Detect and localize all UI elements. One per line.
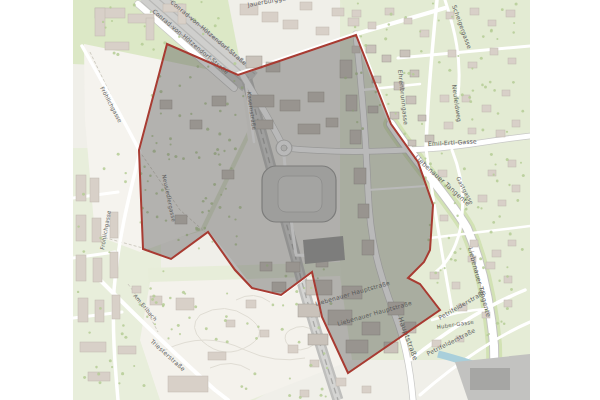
tree-dot [461, 93, 464, 96]
tree-dot [111, 20, 113, 22]
building [492, 250, 501, 257]
tree-dot [289, 377, 291, 379]
tree-dot [521, 248, 524, 251]
tree-dot [162, 270, 164, 272]
tree-dot [321, 387, 324, 390]
tree-dot [385, 94, 387, 96]
tree-dot [224, 319, 227, 322]
tree-dot [420, 50, 422, 52]
tree-dot [471, 68, 473, 70]
building [512, 185, 520, 192]
tree-dot [113, 52, 116, 55]
tree-dot [482, 35, 485, 38]
tree-dot [488, 333, 490, 335]
building [362, 386, 371, 393]
tree-dot [82, 250, 85, 253]
tree-dot [513, 22, 515, 24]
tree-dot [295, 303, 298, 306]
tree-dot [272, 304, 275, 307]
building [400, 50, 410, 57]
building [110, 212, 118, 238]
tree-dot [320, 394, 323, 397]
large-building [470, 368, 510, 390]
tree-dot [500, 321, 502, 323]
tree-dot [77, 291, 79, 293]
building [420, 30, 429, 37]
tree-dot [154, 323, 156, 325]
tree-dot [419, 31, 421, 33]
tree-dot [295, 290, 298, 293]
tree-dot [144, 25, 146, 27]
tree-dot [122, 324, 124, 326]
tree-dot [121, 372, 124, 375]
building [332, 8, 344, 16]
tree-dot [521, 110, 524, 113]
tree-dot [480, 57, 483, 60]
tree-dot [503, 323, 505, 325]
tree-dot [298, 341, 301, 344]
building [385, 8, 394, 15]
building [110, 252, 118, 278]
building [488, 170, 496, 176]
tree-dot [454, 259, 457, 262]
building [444, 122, 453, 129]
tree-dot [102, 21, 104, 23]
building [486, 262, 495, 269]
building [80, 342, 106, 352]
tree-dot [282, 304, 284, 306]
building [283, 20, 298, 29]
tree-dot [465, 208, 467, 210]
tree-dot [133, 3, 136, 6]
tree-dot [469, 100, 472, 103]
tree-dot [188, 316, 191, 319]
building [470, 8, 479, 15]
building [504, 300, 512, 307]
tree-dot [357, 2, 359, 4]
building [208, 352, 226, 360]
tree-dot [143, 384, 146, 387]
building [440, 215, 448, 221]
building [226, 320, 235, 327]
tree-dot [309, 364, 312, 367]
building [482, 105, 491, 112]
tree-dot [448, 237, 451, 240]
tree-dot [472, 89, 474, 91]
tree-dot [105, 27, 107, 29]
building [446, 12, 454, 19]
tree-dot [481, 84, 484, 87]
building [508, 160, 516, 167]
tree-dot [493, 89, 496, 92]
building [468, 62, 477, 68]
building [404, 18, 412, 24]
tree-dot [509, 232, 512, 235]
building [506, 10, 515, 17]
tree-dot [438, 61, 441, 64]
building [146, 18, 154, 40]
tree-dot [299, 396, 302, 399]
tree-dot [245, 387, 248, 390]
tree-dot [395, 113, 397, 115]
building [496, 130, 505, 137]
tree-dot [184, 293, 186, 295]
building [95, 300, 104, 322]
tree-dot [240, 385, 243, 388]
tree-dot [388, 23, 391, 26]
building [246, 56, 262, 68]
tree-dot [226, 293, 228, 295]
tree-dot [496, 322, 499, 325]
building [176, 298, 194, 310]
tree-dot [448, 69, 451, 72]
tree-dot [171, 328, 173, 330]
map-image[interactable]: Conrad-von-Hötzendorf-StraßeConrad-von-H… [0, 0, 600, 400]
tree-dot [88, 331, 90, 333]
tree-dot [124, 180, 127, 183]
tree-dot [253, 372, 256, 375]
building [168, 376, 208, 392]
tree-dot [202, 33, 205, 36]
building [468, 128, 476, 134]
tree-dot [214, 24, 217, 27]
tree-dot [495, 163, 497, 165]
map-page: Conrad-von-Hötzendorf-StraßeConrad-von-H… [0, 0, 600, 400]
tree-dot [497, 112, 500, 115]
tree-dot [288, 394, 291, 397]
tree-dot [386, 29, 388, 31]
tree-dot [390, 13, 393, 16]
tree-dot [152, 294, 155, 297]
tree-dot [225, 315, 228, 318]
tree-dot [167, 337, 169, 339]
tree-dot [513, 31, 515, 33]
tree-dot [481, 129, 484, 132]
tree-dot [508, 184, 510, 186]
tree-dot [83, 376, 86, 379]
tree-dot [441, 152, 443, 154]
tree-dot [124, 336, 127, 339]
tree-dot [479, 257, 482, 260]
tree-dot [512, 81, 515, 84]
building [288, 345, 298, 353]
tree-dot [490, 153, 493, 156]
tree-dot [506, 131, 508, 133]
tree-dot [493, 174, 495, 176]
tree-dot [152, 48, 154, 50]
tree-dot [516, 199, 519, 202]
tree-dot [520, 162, 522, 164]
building [512, 120, 520, 127]
tree-dot [226, 340, 229, 343]
tree-dot [325, 395, 327, 397]
tree-dot [490, 230, 493, 233]
building [490, 48, 498, 55]
tree-dot [155, 301, 158, 304]
tree-dot [141, 43, 144, 46]
tree-dot [450, 258, 453, 261]
tree-dot [498, 215, 500, 217]
building [410, 70, 419, 77]
tree-dot [217, 17, 220, 20]
building [300, 2, 312, 10]
tree-dot [99, 381, 102, 384]
tree-dot [482, 266, 485, 269]
building [76, 175, 86, 201]
tree-dot [412, 73, 415, 76]
tree-dot [177, 324, 180, 327]
tree-dot [121, 332, 124, 335]
building [408, 140, 416, 146]
tree-dot [463, 167, 466, 170]
tree-dot [281, 328, 284, 331]
tree-dot [492, 221, 495, 224]
tree-dot [95, 366, 98, 369]
tree-dot [205, 327, 208, 330]
tree-dot [200, 1, 202, 3]
building [90, 178, 99, 202]
building [93, 258, 102, 282]
tree-dot [310, 287, 312, 289]
building [452, 282, 460, 289]
tree-dot [436, 282, 438, 284]
tree-dot [103, 167, 106, 170]
tree-dot [82, 193, 85, 196]
tree-dot [471, 118, 473, 120]
tree-dot [97, 372, 100, 375]
tree-dot [506, 307, 509, 310]
tree-dot [133, 365, 135, 367]
building [316, 27, 329, 35]
tree-dot [456, 215, 458, 217]
tree-dot [403, 132, 406, 135]
tree-dot [111, 366, 113, 368]
building [112, 295, 120, 319]
tree-dot [432, 2, 434, 4]
tree-dot [501, 8, 504, 11]
tree-dot [109, 359, 112, 362]
tree-dot [490, 29, 493, 32]
building [368, 22, 376, 29]
building [382, 55, 391, 62]
building [348, 18, 359, 26]
tree-dot [317, 326, 320, 329]
tree-dot [477, 206, 479, 208]
building [308, 334, 328, 345]
building [105, 42, 129, 50]
tree-dot [506, 266, 508, 268]
tree-dot [443, 267, 445, 269]
tree-dot [255, 337, 258, 340]
tree-dot [118, 382, 120, 384]
tree-dot [246, 322, 248, 324]
tree-dot [480, 207, 482, 209]
tree-dot [498, 280, 500, 282]
tree-dot [99, 307, 102, 310]
tree-dot [117, 153, 120, 156]
tree-dot [149, 287, 151, 289]
tree-dot [387, 103, 389, 105]
tree-dot [146, 316, 148, 318]
tree-dot [457, 55, 459, 57]
tree-dot [421, 123, 423, 125]
tree-dot [169, 297, 172, 300]
tree-dot [364, 44, 367, 47]
tree-dot [179, 333, 181, 335]
tree-dot [384, 37, 387, 40]
tree-dot [124, 172, 126, 174]
building [508, 240, 516, 246]
tree-dot [496, 180, 499, 183]
building [76, 215, 86, 241]
tree-dot [354, 26, 356, 28]
building [390, 112, 399, 119]
tree-dot [360, 35, 362, 37]
tree-dot [439, 269, 441, 271]
building [76, 255, 86, 281]
tree-dot [506, 158, 509, 161]
tree-dot [506, 275, 509, 278]
tree-dot [515, 2, 518, 5]
tree-dot [489, 81, 492, 84]
tree-dot [326, 367, 328, 369]
tree-dot [151, 298, 154, 301]
tree-dot [484, 85, 487, 88]
building [488, 20, 496, 26]
building [448, 50, 456, 57]
tree-dot [522, 174, 525, 177]
building [462, 95, 470, 102]
tree-dot [468, 96, 471, 99]
tree-dot [510, 288, 513, 291]
tree-dot [109, 6, 111, 8]
building [336, 378, 346, 386]
tree-dot [404, 16, 407, 19]
tree-dot [108, 251, 110, 253]
tree-dot [407, 72, 410, 75]
map-svg: Conrad-von-Hötzendorf-StraßeConrad-von-H… [0, 0, 600, 400]
building [262, 12, 278, 22]
building [478, 195, 487, 202]
building [508, 58, 516, 64]
tree-dot [496, 38, 498, 40]
building [366, 45, 376, 53]
tree-dot [454, 202, 456, 204]
building [118, 346, 136, 354]
tree-dot [194, 305, 197, 308]
building [418, 115, 426, 121]
building [498, 200, 506, 206]
tree-dot [233, 62, 236, 65]
tree-dot [323, 352, 326, 355]
tree-dot [215, 338, 218, 341]
building [502, 90, 510, 96]
tree-dot [303, 287, 305, 289]
building [260, 330, 269, 337]
tree-dot [454, 251, 457, 254]
tree-dot [116, 53, 119, 56]
tree-dot [162, 303, 165, 306]
building [78, 298, 88, 322]
tree-dot [451, 16, 453, 18]
tree-dot [434, 271, 437, 274]
tree-dot [438, 19, 440, 21]
tree-dot [459, 248, 461, 250]
building [246, 300, 256, 308]
tree-dot [198, 247, 200, 249]
tree-dot [77, 225, 79, 227]
building [300, 390, 309, 397]
building [440, 95, 449, 102]
building [352, 10, 361, 17]
tree-dot [257, 326, 259, 328]
